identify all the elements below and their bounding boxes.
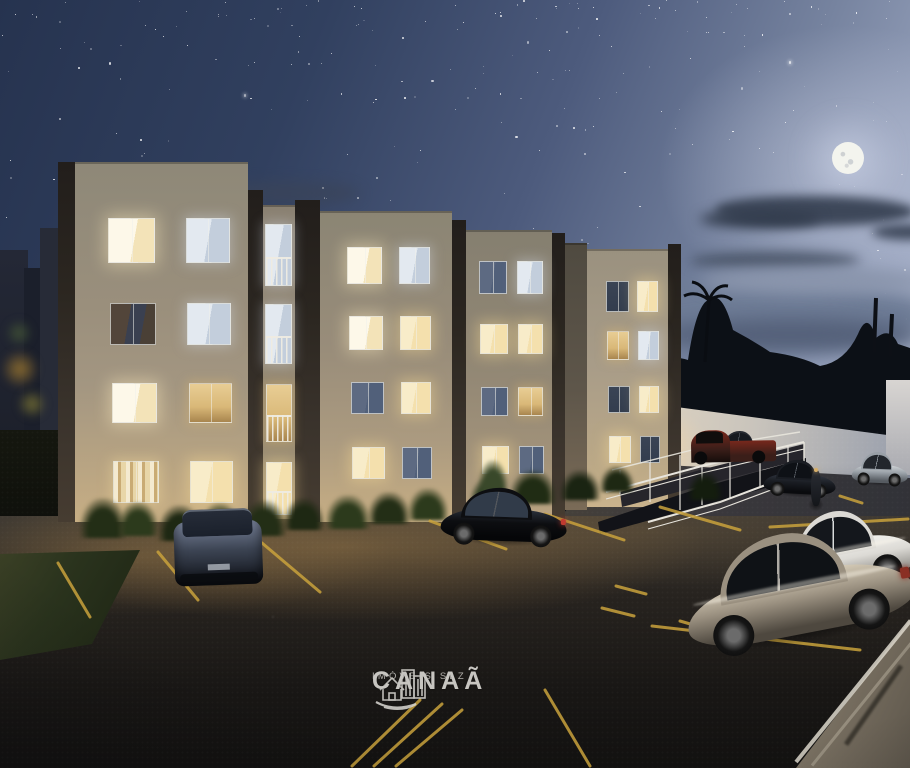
star — [741, 87, 743, 89]
window-mullion — [133, 304, 134, 344]
star — [356, 25, 357, 26]
star — [341, 93, 343, 95]
star — [666, 0, 667, 1]
block-b1-window — [399, 247, 430, 284]
star — [120, 78, 121, 79]
star — [250, 19, 252, 21]
star — [555, 6, 556, 7]
star — [897, 71, 898, 72]
star — [109, 62, 111, 64]
car-cab-glass — [696, 431, 723, 444]
star — [116, 133, 117, 134]
window-mullion — [135, 384, 136, 422]
window-mullion — [650, 437, 651, 462]
star — [306, 5, 307, 6]
star — [556, 8, 557, 9]
star — [517, 4, 519, 6]
moon — [832, 142, 864, 174]
star — [358, 24, 359, 25]
window-mullion — [620, 437, 621, 462]
star — [655, 18, 656, 19]
star — [168, 140, 169, 141]
star — [401, 81, 402, 82]
facade-pillar — [58, 162, 75, 522]
block-b1-window — [401, 382, 431, 414]
window-mullion — [209, 304, 210, 344]
star — [187, 45, 188, 46]
star — [65, 2, 66, 3]
star — [500, 12, 501, 13]
star — [144, 153, 145, 154]
star — [59, 21, 61, 23]
window-mullion — [494, 325, 495, 353]
star — [581, 239, 583, 241]
right-wing-window — [640, 436, 660, 463]
block-b1-window — [400, 316, 431, 350]
star — [357, 197, 359, 199]
star — [836, 105, 837, 106]
star — [59, 118, 61, 120]
star — [573, 127, 575, 129]
star — [120, 45, 121, 46]
star — [186, 11, 187, 12]
right-wing-window — [609, 436, 631, 463]
block-b2-window — [517, 261, 543, 294]
star — [455, 109, 456, 110]
star — [784, 1, 785, 2]
shrub — [688, 472, 722, 500]
window-mullion — [495, 388, 496, 415]
star — [155, 29, 156, 30]
star — [60, 48, 61, 49]
star — [747, 8, 748, 9]
star — [659, 7, 661, 9]
lit-tree — [6, 318, 32, 348]
car-taillight — [560, 519, 565, 525]
window-mullion — [649, 387, 650, 412]
star — [566, 31, 568, 33]
star — [90, 48, 92, 50]
car-wheel — [530, 525, 552, 547]
star — [854, 186, 855, 187]
star — [825, 14, 826, 15]
lit-bush — [18, 388, 46, 420]
star — [596, 18, 598, 20]
star — [363, 20, 365, 22]
star — [549, 50, 550, 51]
star — [675, 128, 676, 129]
window-mullion — [648, 282, 649, 311]
star — [417, 162, 418, 163]
car-black-sedan — [440, 486, 568, 546]
star — [520, 98, 522, 100]
star — [888, 49, 889, 50]
star — [500, 15, 502, 17]
star — [759, 71, 760, 72]
star — [244, 94, 246, 96]
star — [139, 1, 140, 2]
shrub — [118, 502, 158, 536]
right-wing-window — [639, 386, 659, 413]
block-b2-window — [480, 324, 508, 354]
star — [759, 148, 760, 149]
star — [821, 24, 822, 25]
star — [697, 1, 698, 2]
star — [661, 111, 662, 112]
block-b2-window — [518, 324, 543, 354]
star — [773, 152, 774, 153]
right-wing-window — [637, 281, 658, 312]
balcony-bay-window — [266, 384, 292, 442]
star — [6, 217, 7, 218]
star — [163, 36, 164, 37]
star — [361, 8, 362, 9]
star — [483, 66, 484, 67]
facade-pillar — [295, 200, 320, 522]
star — [457, 29, 458, 30]
block-a-window — [189, 383, 232, 423]
right-wing-window — [608, 386, 630, 413]
star — [785, 122, 786, 123]
star — [611, 46, 612, 47]
star — [267, 25, 269, 27]
star — [291, 64, 292, 65]
window-mullion — [416, 317, 417, 349]
star — [455, 5, 456, 6]
star — [281, 8, 282, 9]
star — [793, 110, 794, 111]
star — [515, 136, 517, 138]
shrub — [368, 492, 410, 524]
brand-tagline: IMÓVEIS SLZ — [372, 671, 467, 682]
star — [372, 30, 373, 31]
star — [901, 174, 903, 176]
star — [569, 3, 570, 4]
star — [789, 61, 791, 63]
star — [402, 37, 404, 39]
star — [577, 3, 578, 4]
block-b2-window — [518, 387, 543, 416]
window-mullion — [619, 387, 620, 412]
block-a-window — [186, 218, 230, 263]
star — [669, 153, 671, 155]
car-wheel — [752, 451, 765, 464]
star — [78, 67, 80, 69]
horizon-cloud-low — [660, 318, 910, 352]
star — [414, 96, 416, 98]
star — [648, 5, 649, 6]
star — [277, 8, 279, 10]
star — [552, 79, 553, 80]
star — [679, 109, 681, 111]
star — [904, 269, 906, 271]
star — [307, 100, 308, 101]
car-wheel — [453, 523, 475, 545]
star — [225, 2, 227, 4]
star — [226, 15, 227, 16]
car-plate — [208, 563, 229, 570]
star — [708, 32, 709, 33]
window-mullion — [369, 448, 370, 478]
balcony-railing — [267, 415, 291, 441]
block-b1-window — [351, 382, 384, 414]
star — [811, 6, 812, 7]
star — [877, 250, 879, 252]
star — [599, 98, 600, 99]
star — [84, 42, 85, 43]
star — [512, 55, 514, 57]
star — [390, 200, 391, 201]
moto-body — [811, 470, 821, 507]
star — [853, 22, 855, 24]
star — [804, 86, 805, 87]
block-b1-window — [402, 447, 432, 479]
block-a-window — [108, 218, 155, 263]
star — [723, 32, 725, 34]
shrub — [326, 495, 370, 529]
car-silver-sedan-far — [851, 451, 908, 486]
star — [504, 193, 505, 194]
star — [593, 126, 594, 127]
window-mullion — [136, 462, 137, 502]
star — [145, 25, 146, 26]
star — [308, 63, 310, 65]
right-wing-window — [638, 331, 659, 360]
star — [789, 13, 791, 15]
star — [218, 16, 219, 17]
star — [10, 177, 12, 179]
star — [649, 66, 651, 68]
star — [527, 41, 529, 43]
star — [376, 177, 378, 179]
star — [248, 65, 249, 66]
balcony-railing — [266, 336, 291, 363]
star — [731, 12, 732, 13]
star — [298, 51, 299, 52]
star — [533, 228, 534, 229]
block-a-window — [113, 461, 159, 503]
window-mullion — [649, 332, 650, 359]
block-b2-window — [481, 387, 508, 416]
star — [271, 109, 272, 110]
star — [762, 34, 764, 36]
star — [291, 25, 293, 27]
block-a-window — [110, 303, 156, 345]
star — [10, 160, 11, 161]
star — [744, 46, 745, 47]
star — [706, 17, 707, 18]
star — [536, 18, 537, 19]
window-mullion — [530, 262, 531, 293]
star — [375, 65, 376, 66]
star — [299, 36, 300, 37]
star — [347, 154, 348, 155]
star — [886, 18, 887, 19]
star — [856, 12, 858, 14]
star — [354, 6, 355, 7]
star — [495, 13, 496, 14]
star — [141, 155, 143, 157]
window-mullion — [211, 384, 212, 422]
star — [818, 8, 820, 10]
star — [564, 108, 565, 109]
block-b1-window — [352, 447, 385, 479]
star — [578, 8, 579, 9]
star — [687, 31, 688, 32]
shrub — [284, 498, 324, 530]
star — [569, 70, 570, 71]
star — [475, 88, 476, 89]
star — [8, 71, 9, 72]
star — [886, 121, 887, 122]
block-a-window — [190, 461, 233, 503]
star — [675, 10, 676, 11]
star — [404, 97, 406, 99]
star — [36, 16, 37, 17]
star — [450, 69, 451, 70]
star — [523, 0, 525, 2]
window-mullion — [365, 248, 366, 283]
star — [321, 63, 322, 64]
window-mullion — [531, 388, 532, 415]
block-a-window — [112, 383, 157, 423]
star — [463, 22, 464, 23]
star — [584, 153, 586, 155]
facade-pillar — [248, 190, 263, 520]
star — [732, 131, 733, 132]
star — [729, 139, 730, 140]
window-mullion — [212, 462, 213, 502]
block-b1-window — [347, 247, 382, 284]
window-mullion — [208, 219, 209, 262]
star — [250, 98, 251, 99]
star — [599, 35, 600, 36]
star — [373, 102, 374, 103]
star — [539, 150, 540, 151]
car-taillight — [899, 567, 910, 579]
star — [624, 172, 626, 174]
star — [873, 102, 874, 103]
moto-light — [814, 468, 818, 472]
star — [623, 73, 624, 74]
star — [873, 120, 874, 121]
star — [425, 21, 426, 22]
star — [394, 146, 395, 147]
star — [889, 1, 890, 2]
star — [176, 26, 177, 27]
balcony-bay-window — [265, 304, 292, 364]
star — [537, 72, 538, 73]
window-mullion — [415, 248, 416, 283]
star — [692, 144, 693, 145]
window-mullion — [618, 282, 619, 311]
star — [744, 35, 745, 36]
balcony-railing — [266, 257, 291, 285]
star — [280, 12, 281, 13]
star — [593, 7, 594, 8]
star — [880, 258, 881, 259]
car-hatchback-rear — [173, 501, 264, 586]
block-a-window — [187, 303, 231, 345]
lit-tree — [2, 348, 38, 390]
shrub — [600, 466, 634, 492]
star — [556, 125, 558, 127]
window-mullion — [366, 317, 367, 349]
star — [254, 18, 255, 19]
star — [483, 73, 484, 74]
right-wing-window — [606, 281, 629, 312]
window-mullion — [132, 219, 133, 262]
star — [500, 93, 501, 94]
star — [578, 27, 580, 29]
star — [639, 206, 641, 208]
star — [585, 129, 586, 130]
car-rear-window — [182, 508, 253, 537]
cloud-band-core — [700, 210, 820, 228]
star — [331, 53, 332, 54]
block-b2-window — [479, 261, 507, 294]
balcony-bay-window — [265, 224, 292, 286]
window-mullion — [416, 383, 417, 413]
night-render-scene: CANAÃ IMÓVEIS SLZ — [0, 0, 910, 768]
star — [431, 80, 433, 82]
right-wing-window — [607, 331, 629, 360]
star — [140, 139, 142, 141]
block-b1-window — [349, 316, 383, 350]
star — [32, 14, 33, 15]
f-b1-facade — [320, 211, 452, 522]
star — [53, 179, 54, 180]
star — [15, 14, 16, 15]
star — [375, 99, 377, 101]
star — [565, 70, 566, 71]
star — [467, 97, 469, 99]
star — [501, 122, 502, 123]
facade-pillar — [452, 220, 466, 522]
window-mullion — [417, 448, 418, 478]
star — [2, 35, 3, 36]
star — [318, 0, 320, 2]
star — [597, 227, 598, 228]
star — [215, 59, 217, 61]
window-mullion — [618, 332, 619, 359]
window-mullion — [368, 383, 369, 413]
window-mullion — [493, 262, 494, 293]
star — [736, 4, 737, 5]
star — [640, 13, 641, 14]
star — [690, 58, 691, 59]
star — [616, 92, 617, 93]
car-pickup-truck — [681, 423, 777, 463]
window-mullion — [531, 325, 532, 353]
star — [839, 184, 840, 185]
star — [420, 150, 421, 151]
car-motorcycle — [806, 466, 826, 510]
star — [254, 62, 255, 63]
star — [587, 243, 589, 245]
star — [169, 89, 170, 90]
